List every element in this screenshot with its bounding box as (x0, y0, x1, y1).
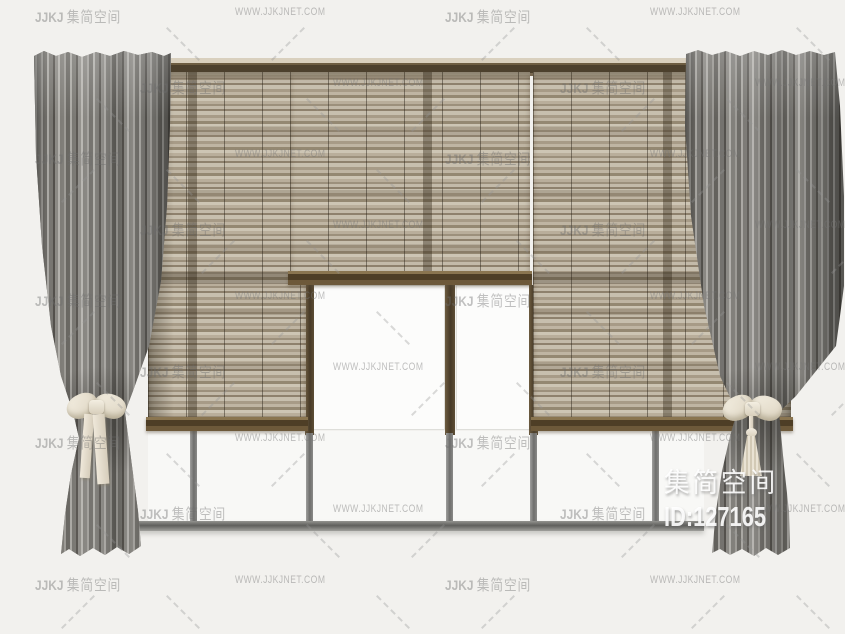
watermark-dash (61, 595, 95, 629)
tassel-knob (746, 428, 757, 437)
watermark-brand-text: JJKJ 集简空间 (35, 6, 121, 27)
site-name-text: 集简空间 (664, 461, 788, 500)
steel-bottom-rail (126, 521, 704, 531)
watermark-brand-text: JJKJ 集简空间 (445, 6, 531, 27)
bamboo-blind-left (148, 72, 306, 431)
bow-knot (745, 402, 760, 416)
watermark-dash (796, 595, 830, 629)
watermark-dash (586, 27, 620, 61)
mullion-through-line (663, 72, 672, 419)
steel-post-1 (190, 431, 197, 521)
mullion-through-line (188, 72, 197, 419)
door-panel-right (456, 285, 530, 430)
steel-post-4 (530, 433, 537, 521)
watermark-brand-text: JJKJ 集简空间 (445, 574, 531, 595)
watermark-url-text: WWW.JJKJNET.COM (235, 6, 325, 18)
door-frame-post-center (445, 285, 455, 435)
watermark-dash (831, 382, 845, 416)
watermark-brand-text: JJKJ 集简空间 (35, 574, 121, 595)
watermark-dash (271, 27, 305, 61)
watermark-dash (481, 595, 515, 629)
bamboo-blind-center (290, 72, 530, 285)
steel-post-2 (306, 433, 313, 521)
watermark-url-text: WWW.JJKJNET.COM (235, 574, 325, 586)
watermark-dash (691, 595, 725, 629)
watermark-dash (166, 27, 200, 61)
door-panel-left (313, 285, 445, 430)
watermark-dash (481, 27, 515, 61)
blind-bottom-rail (288, 271, 532, 285)
watermark-url-text: WWW.JJKJNET.COM (650, 6, 740, 18)
site-id-watermark: 集简空间 ID:127165 (664, 461, 795, 533)
watermark-url-text: WWW.JJKJNET.COM (650, 574, 740, 586)
model-id-text: ID:127165 (664, 501, 766, 533)
steel-post-5 (652, 431, 659, 521)
watermark-dash (166, 595, 200, 629)
watermark-dash (796, 453, 830, 487)
door-frame-post-left (305, 285, 314, 435)
lower-wall-band (148, 431, 704, 521)
product-render-canvas: JJKJ 集简空间WWW.JJKJNET.COMJJKJ 集简空间WWW.JJK… (0, 0, 845, 634)
bow-knot (89, 400, 104, 414)
watermark-dash (376, 595, 410, 629)
blind-bottom-rail (146, 417, 308, 431)
steel-post-3 (446, 433, 453, 521)
mullion-through-line (423, 72, 432, 273)
